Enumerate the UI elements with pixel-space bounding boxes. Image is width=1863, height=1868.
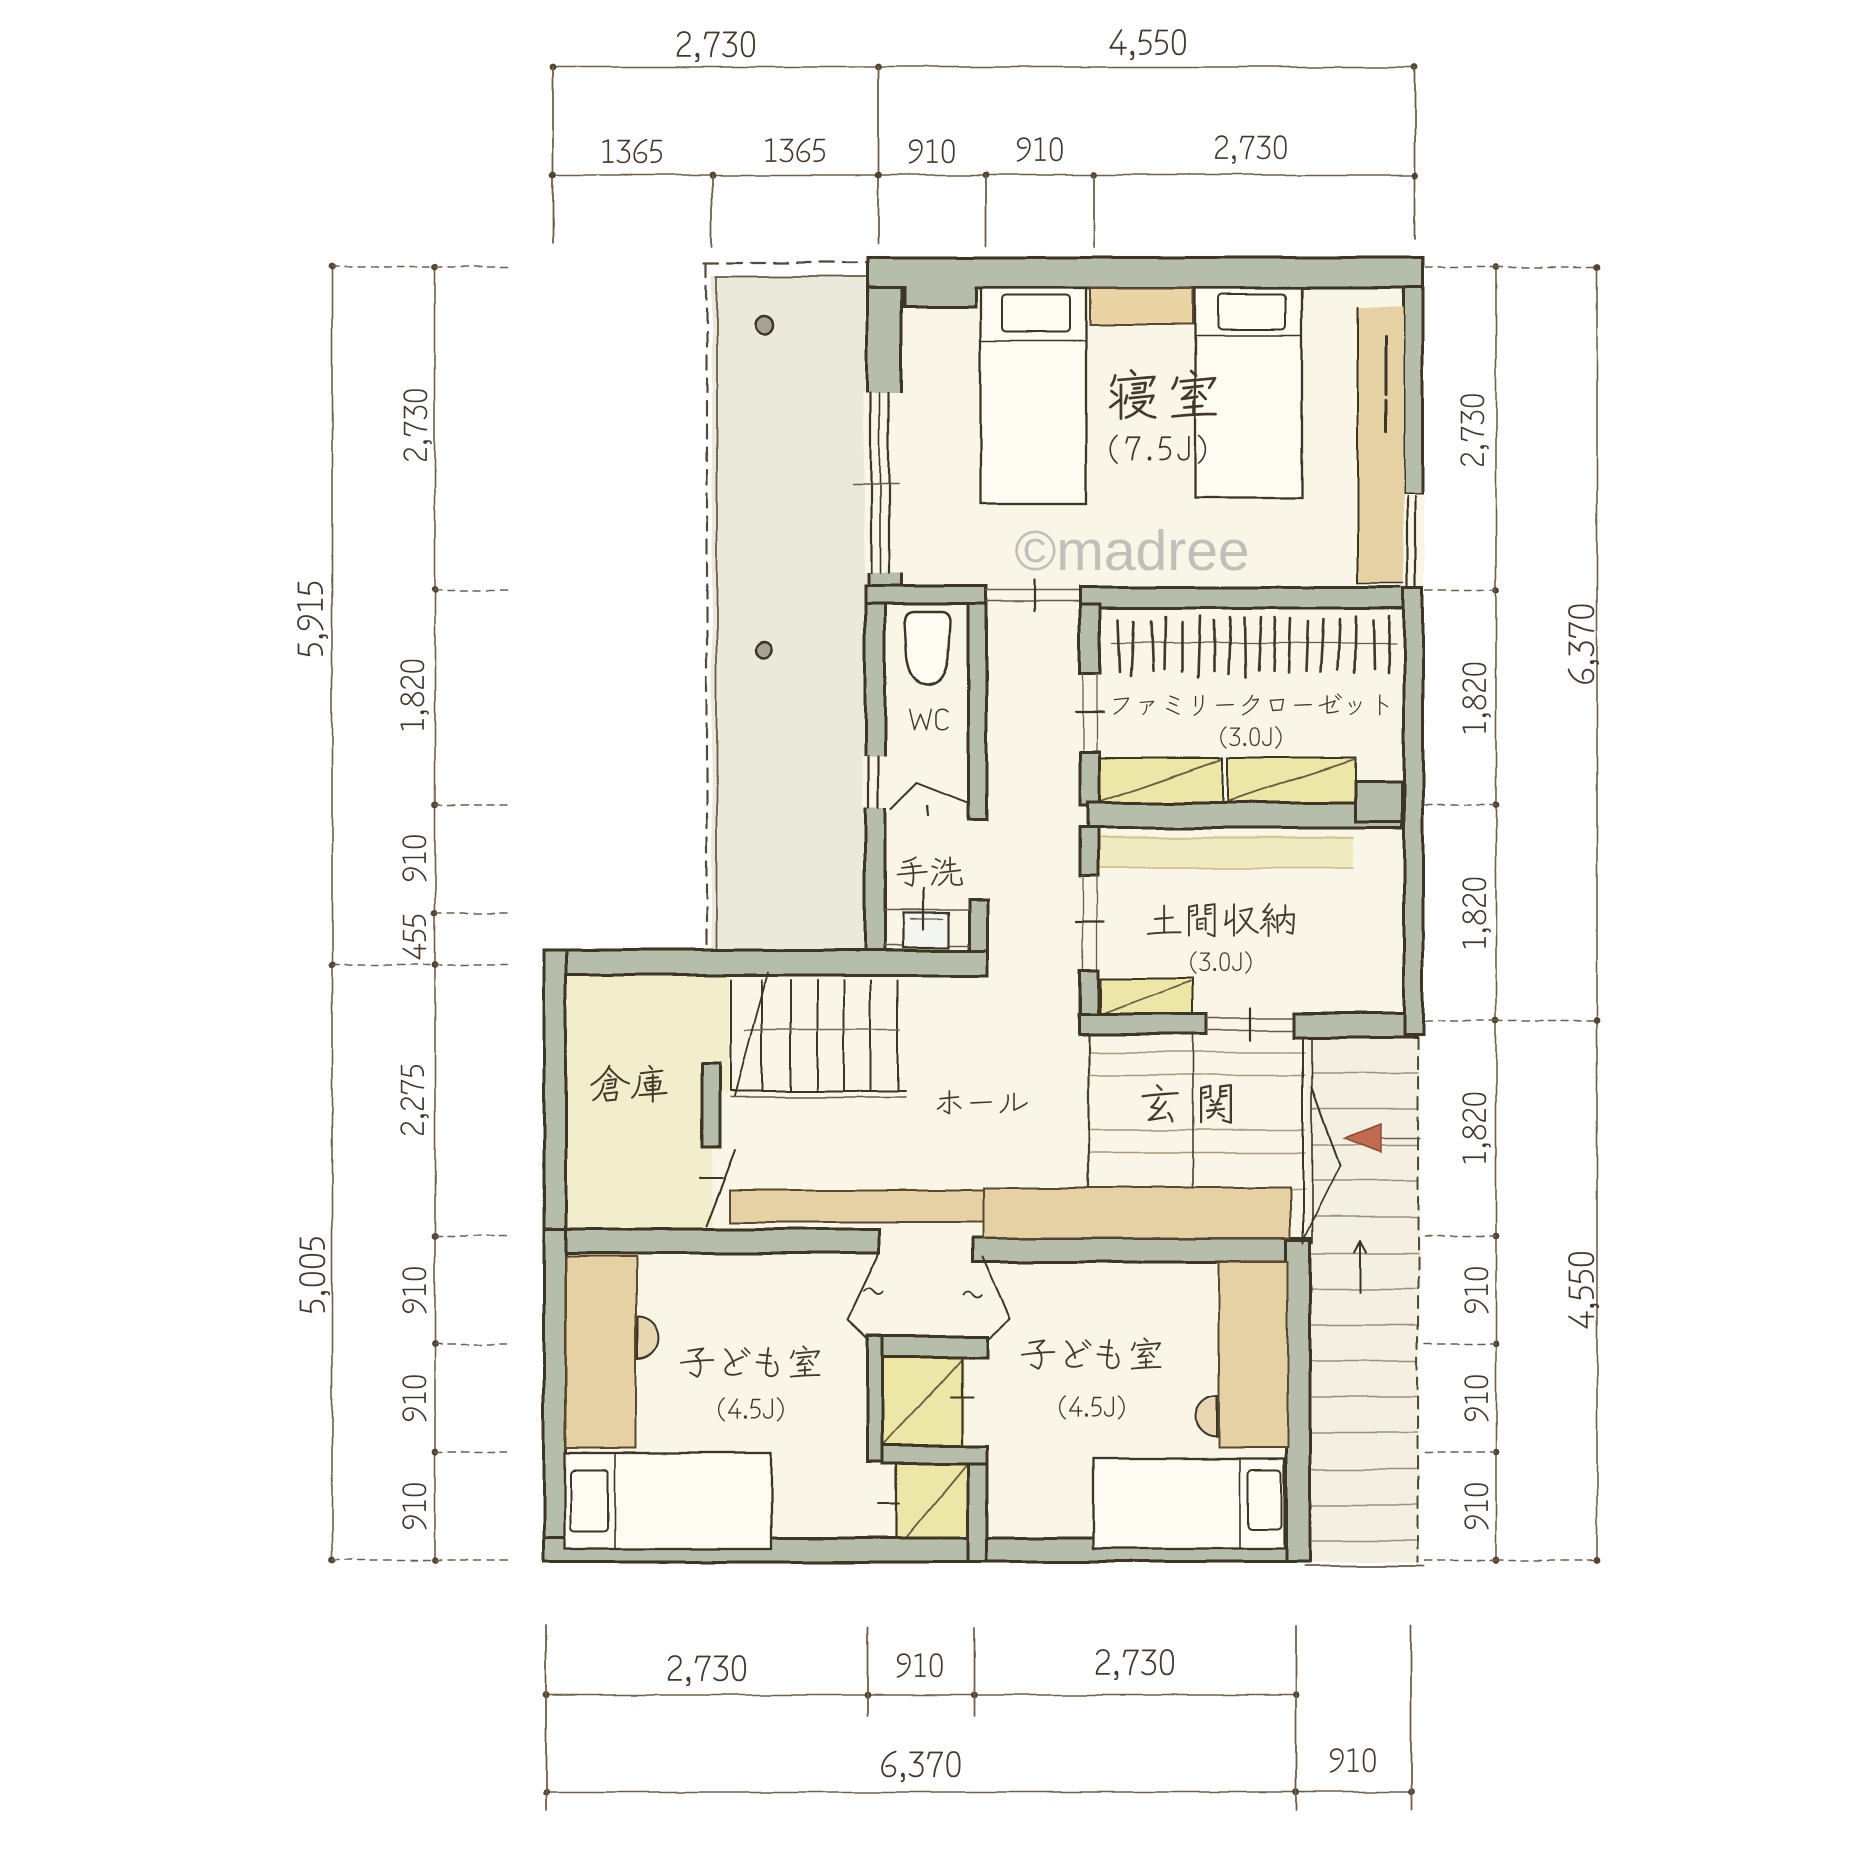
svg-text:©madree: ©madree bbox=[1014, 519, 1249, 583]
